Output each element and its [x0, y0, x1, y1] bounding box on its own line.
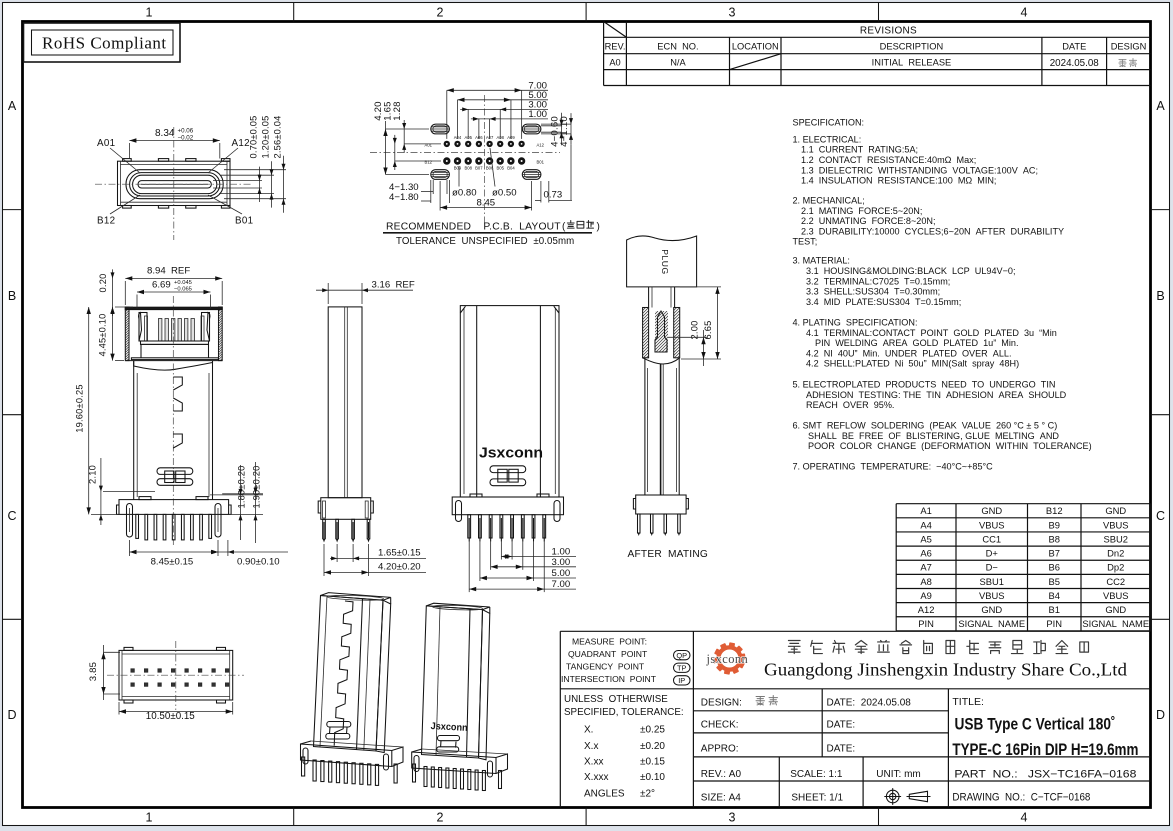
svg-text:PLUG: PLUG: [660, 249, 670, 274]
svg-text:B01: B01: [537, 159, 545, 164]
svg-text:DESIGN:: DESIGN:: [701, 698, 742, 709]
svg-text:Jsxconn: Jsxconn: [479, 445, 543, 462]
svg-text:Guangdong Jinshengxin Industry: Guangdong Jinshengxin Industry Share Co.…: [764, 660, 1127, 680]
svg-text:GND: GND: [981, 505, 1002, 516]
svg-text:4.20±0.20: 4.20±0.20: [378, 562, 421, 573]
svg-text:A8: A8: [920, 576, 931, 587]
svg-text:±0.25: ±0.25: [640, 725, 665, 736]
svg-text:TOLERANCE UNSPECIFIED ±0.05m: TOLERANCE UNSPECIFIED ±0.05mm: [396, 236, 574, 247]
svg-text:PIN: PIN: [1046, 618, 1062, 629]
svg-text:±0.15: ±0.15: [640, 757, 665, 768]
svg-text:1.80±0.20: 1.80±0.20: [237, 465, 247, 508]
svg-text:ø0.50: ø0.50: [492, 188, 517, 199]
svg-text:PIN: PIN: [918, 618, 934, 629]
svg-text:6.69: 6.69: [152, 280, 171, 291]
svg-text:19.60±0.25: 19.60±0.25: [75, 384, 85, 432]
svg-text:3.85: 3.85: [88, 662, 99, 681]
svg-text:SPECIFIED, TOLERANCE:: SPECIFIED, TOLERANCE:: [564, 707, 684, 718]
svg-text:B12: B12: [1046, 505, 1063, 516]
svg-text:DESCRIPTION: DESCRIPTION: [880, 42, 944, 52]
svg-text:LOCATION: LOCATION: [732, 42, 779, 52]
svg-text:GND: GND: [1105, 604, 1126, 615]
svg-text:2: 2: [437, 811, 444, 825]
svg-text:3: 3: [729, 6, 736, 20]
svg-text:X.x: X.x: [584, 741, 598, 752]
svg-text:SIGNAL NAME: SIGNAL NAME: [958, 618, 1025, 629]
svg-text:GND: GND: [1105, 505, 1126, 516]
svg-text:CC2: CC2: [1106, 576, 1125, 587]
svg-text:QP: QP: [676, 651, 687, 660]
svg-text:VBUS: VBUS: [1103, 519, 1129, 530]
svg-text:A0: A0: [609, 58, 620, 68]
svg-text:1.4 INSULATION RESISTANCE:10: 1.4 INSULATION RESISTANCE:100 MΩ MIN;: [801, 176, 996, 186]
svg-text:1.2 CONTACT RESISTANCE:40mΩ: 1.2 CONTACT RESISTANCE:40mΩ Max;: [801, 155, 976, 165]
svg-text:2.00: 2.00: [689, 321, 699, 340]
svg-text:1.90±0.20: 1.90±0.20: [252, 465, 262, 508]
svg-text:VBUS: VBUS: [1103, 590, 1129, 601]
svg-text:DRAWING NO.: C−TCF−0168: DRAWING NO.: C−TCF−0168: [952, 792, 1090, 804]
svg-text:D: D: [1156, 708, 1165, 722]
svg-text:A12: A12: [537, 142, 545, 147]
svg-text:B08: B08: [464, 166, 472, 171]
svg-text:A: A: [8, 99, 17, 113]
svg-text:TITLE:: TITLE:: [952, 696, 984, 708]
svg-text:A01: A01: [97, 138, 115, 149]
svg-text:3. MATERIAL:: 3. MATERIAL:: [793, 256, 850, 266]
svg-text:0.20: 0.20: [98, 274, 108, 293]
svg-text:A: A: [1156, 99, 1165, 113]
svg-text:D: D: [7, 708, 16, 722]
svg-text:REV.: REV.: [605, 42, 626, 52]
svg-text:2: 2: [437, 6, 444, 20]
svg-text:A9: A9: [920, 590, 931, 601]
svg-text:CHECK:: CHECK:: [701, 720, 739, 731]
svg-text:B1: B1: [1049, 604, 1060, 615]
svg-text:SHALL BE FREE OF BLISTERIN: SHALL BE FREE OF BLISTERING, GLUE MELTIN…: [808, 431, 1059, 441]
svg-text:8.34: 8.34: [155, 128, 175, 139]
svg-text:UNLESS OTHERWISE: UNLESS OTHERWISE: [564, 694, 668, 705]
svg-text:3.4 MID PLATE:SUS304 T=0.15: 3.4 MID PLATE:SUS304 T=0.15mm;: [806, 297, 961, 307]
svg-text:7.00: 7.00: [552, 579, 571, 590]
svg-text:3.16 REF: 3.16 REF: [372, 280, 415, 291]
svg-text:C: C: [7, 509, 16, 523]
svg-text:USB Type C Vertical 180˚: USB Type C Vertical 180˚: [955, 716, 1116, 734]
svg-text:3.2 TERMINAL:C7025 T=0.15mm;: 3.2 TERMINAL:C7025 T=0.15mm;: [806, 276, 950, 286]
svg-text:3.00: 3.00: [552, 557, 571, 568]
svg-text:0.73: 0.73: [544, 190, 563, 201]
svg-text:B6: B6: [1049, 562, 1060, 573]
svg-text:SPECIFICATION:: SPECIFICATION:: [793, 118, 865, 128]
svg-text:A7: A7: [920, 562, 931, 573]
svg-text:6. SMT REFLOW SOLDERING (PE: 6. SMT REFLOW SOLDERING (PEAK VALUE 260 …: [793, 421, 1058, 431]
svg-text:SBU1: SBU1: [980, 576, 1005, 587]
svg-text:SIZE: A4: SIZE: A4: [701, 793, 741, 804]
svg-text:8.94 REF: 8.94 REF: [147, 266, 190, 277]
svg-text:B05: B05: [497, 166, 505, 171]
svg-text:B09: B09: [454, 166, 462, 171]
svg-text:ANGLES: ANGLES: [584, 789, 625, 800]
svg-text:REVISIONS: REVISIONS: [860, 25, 917, 36]
svg-text:0.90±0.10: 0.90±0.10: [237, 557, 280, 568]
svg-text:4. PLATING SPECIFICATION:: 4. PLATING SPECIFICATION:: [793, 318, 918, 328]
svg-text:8.45: 8.45: [476, 197, 495, 208]
svg-text:4: 4: [1021, 811, 1028, 825]
svg-text:Jsxconn: Jsxconn: [430, 721, 468, 734]
svg-text:A12: A12: [232, 138, 250, 149]
svg-text:RECOMMENDED P.C.B. LAYOUT: RECOMMENDED P.C.B. LAYOUT: [386, 222, 561, 233]
svg-text:5.00: 5.00: [552, 568, 571, 579]
svg-text:SBU2: SBU2: [1104, 533, 1129, 544]
svg-text:B04: B04: [507, 166, 515, 171]
svg-text:GND: GND: [981, 604, 1002, 615]
svg-text:DESIGN: DESIGN: [1111, 42, 1147, 52]
svg-text:2.1 MATING FORCE:5~20N;: 2.1 MATING FORCE:5~20N;: [801, 206, 922, 216]
svg-text:2.10: 2.10: [88, 465, 98, 484]
svg-text:1.20±0.05: 1.20±0.05: [261, 115, 271, 158]
svg-text:APPRO:: APPRO:: [701, 744, 739, 755]
svg-text:INITIAL RELEASE: INITIAL RELEASE: [872, 58, 952, 68]
svg-text:7. OPERATING TEMPERATURE: −4: 7. OPERATING TEMPERATURE: −40°C~+85°C: [793, 462, 994, 472]
svg-text:1.28: 1.28: [392, 101, 403, 120]
svg-text:C: C: [1156, 509, 1165, 523]
svg-text:2. MECHANICAL;: 2. MECHANICAL;: [793, 196, 865, 206]
svg-text:4.1 TERMINAL:CONTACT POINT: 4.1 TERMINAL:CONTACT POINT GOLD PLATED 3…: [806, 328, 1057, 338]
svg-text:4.2 SHELL:PLATED Ni 50u” M: 4.2 SHELL:PLATED Ni 50u” MIN(Salt spray …: [806, 359, 1019, 369]
svg-text:Dp2: Dp2: [1107, 562, 1124, 573]
svg-text:): ): [597, 222, 600, 233]
svg-text:B8: B8: [1049, 533, 1060, 544]
svg-text:4.45±0.10: 4.45±0.10: [98, 313, 108, 356]
svg-text:2024.05.08: 2024.05.08: [1050, 58, 1100, 69]
svg-text:SCALE: 1:1: SCALE: 1:1: [790, 769, 843, 780]
svg-text:X.xxx: X.xxx: [584, 772, 608, 783]
svg-text:A12: A12: [918, 604, 935, 615]
svg-text:QUADRANT POINT: QUADRANT POINT: [568, 649, 648, 659]
svg-text:4.2 NI 40U” Min. UNDER PL: 4.2 NI 40U” Min. UNDER PLATED OVER ALL.: [806, 348, 1012, 358]
svg-text:1: 1: [146, 6, 153, 20]
svg-text:SHEET: 1/1: SHEET: 1/1: [791, 793, 843, 804]
svg-text:A1: A1: [920, 505, 931, 516]
svg-text:B7: B7: [1049, 548, 1060, 559]
svg-text:±0.20: ±0.20: [640, 741, 665, 752]
svg-text:2.3 DURABILITY:10000 CYCLES;: 2.3 DURABILITY:10000 CYCLES;6~20N AFTER …: [801, 226, 1064, 236]
svg-text:+0.06: +0.06: [178, 128, 194, 135]
svg-text:1.3 DIELECTRIC WITHSTANDING: 1.3 DIELECTRIC WITHSTANDING VOLTAGE:100V…: [801, 165, 1038, 175]
svg-text:B5: B5: [1049, 576, 1060, 587]
svg-text:3.1 HOUSING&MOLDING:BLACK LC: 3.1 HOUSING&MOLDING:BLACK LCP UL94V−0;: [806, 266, 1016, 276]
svg-text:N/A: N/A: [670, 57, 686, 67]
svg-text:TP: TP: [677, 664, 687, 673]
svg-text:DATE: DATE: [1062, 42, 1086, 52]
svg-text:8.45±0.15: 8.45±0.15: [151, 557, 194, 568]
svg-text:ECN NO.: ECN NO.: [657, 42, 698, 52]
svg-text:1: 1: [146, 811, 153, 825]
svg-text:ADHESION TESTING: THE TIN A: ADHESION TESTING: THE TIN ADHESION AREA …: [806, 390, 1067, 400]
svg-text:X.xx: X.xx: [584, 757, 603, 768]
svg-text:Dn2: Dn2: [1107, 548, 1124, 559]
svg-text:3: 3: [729, 811, 736, 825]
svg-text:4: 4: [1021, 6, 1028, 20]
svg-text:CC1: CC1: [982, 533, 1001, 544]
svg-text:D+: D+: [986, 548, 999, 559]
svg-text:POOR COLOR CHANGE (DEFORMAT: POOR COLOR CHANGE (DEFORMATION WITHIN TO…: [808, 441, 1092, 451]
svg-text:VBUS: VBUS: [979, 590, 1005, 601]
svg-text:1.1 CURRENT RATING:5A;: 1.1 CURRENT RATING:5A;: [801, 145, 918, 155]
svg-text:DATE:: DATE:: [827, 744, 856, 755]
svg-text:B: B: [1156, 289, 1164, 303]
svg-text:A01: A01: [425, 142, 433, 147]
svg-text:6.65: 6.65: [703, 321, 713, 340]
svg-text:MEASURE POINT:: MEASURE POINT:: [572, 636, 647, 646]
svg-text:X.: X.: [584, 725, 593, 736]
svg-text:5. ELECTROPLATED PRODUCTS NE: 5. ELECTROPLATED PRODUCTS NEED TO UNDERG…: [793, 380, 1056, 390]
svg-text:DATE: 2024.05.08: DATE: 2024.05.08: [827, 698, 912, 709]
svg-text:B01: B01: [235, 216, 253, 227]
svg-text:REV.: A0: REV.: A0: [701, 769, 742, 780]
svg-text:1. ELECTRICAL:: 1. ELECTRICAL:: [793, 134, 862, 144]
svg-text:VBUS: VBUS: [979, 519, 1005, 530]
svg-text:B4: B4: [1049, 590, 1060, 601]
svg-text:TANGENCY POINT: TANGENCY POINT: [566, 662, 645, 672]
svg-text:4−1.80: 4−1.80: [389, 192, 419, 203]
svg-text:0.70±0.05: 0.70±0.05: [249, 115, 259, 158]
svg-text:10.50±0.15: 10.50±0.15: [146, 711, 196, 722]
svg-text:A5: A5: [920, 533, 931, 544]
svg-text:3.3 SHELL:SUS304 T=0.30mm;: 3.3 SHELL:SUS304 T=0.30mm;: [806, 287, 940, 297]
svg-text:jsxconn: jsxconn: [706, 652, 749, 666]
svg-text:B12: B12: [425, 159, 433, 164]
svg-text:2.2 UNMATING FORCE:8~20N;: 2.2 UNMATING FORCE:8~20N;: [801, 216, 936, 226]
svg-text:TYPE-C 16Pin DIP H=19.6mm: TYPE-C 16Pin DIP H=19.6mm: [952, 741, 1138, 759]
svg-text:INTERSECTION POINT: INTERSECTION POINT: [561, 674, 657, 684]
svg-text:PIN WELDING AREA GOLD PLAT: PIN WELDING AREA GOLD PLATED 1u” Min.: [815, 338, 1018, 348]
svg-text:A4: A4: [920, 519, 931, 530]
svg-text:B9: B9: [1049, 519, 1060, 530]
svg-text:PART NO.: JSX−TC16FA−0168: PART NO.: JSX−TC16FA−0168: [954, 768, 1136, 780]
svg-text:REACH OVER 95%.: REACH OVER 95%.: [806, 400, 894, 410]
svg-text:D−: D−: [986, 562, 999, 573]
svg-text:UNIT: mm: UNIT: mm: [876, 769, 920, 780]
svg-text:ø0.80: ø0.80: [452, 188, 477, 199]
svg-text:±2°: ±2°: [640, 789, 655, 800]
svg-text:1.00: 1.00: [528, 109, 547, 120]
svg-text:±0.10: ±0.10: [640, 772, 665, 783]
svg-text:1.65±0.15: 1.65±0.15: [378, 548, 421, 559]
svg-text:IP: IP: [678, 676, 685, 685]
svg-text:TEST;: TEST;: [793, 237, 818, 247]
svg-text:AFTER MATING: AFTER MATING: [628, 549, 709, 560]
svg-text:RoHS Compliant: RoHS Compliant: [42, 34, 167, 53]
svg-text:DATE:: DATE:: [827, 720, 856, 731]
svg-text:B07: B07: [475, 166, 483, 171]
svg-text:B: B: [8, 289, 16, 303]
svg-text:A6: A6: [920, 548, 931, 559]
svg-text:SIGNAL NAME: SIGNAL NAME: [1082, 618, 1149, 629]
svg-text:2.56±0.04: 2.56±0.04: [273, 115, 283, 158]
svg-text:B12: B12: [97, 216, 115, 227]
svg-text:+0.045: +0.045: [174, 280, 192, 286]
